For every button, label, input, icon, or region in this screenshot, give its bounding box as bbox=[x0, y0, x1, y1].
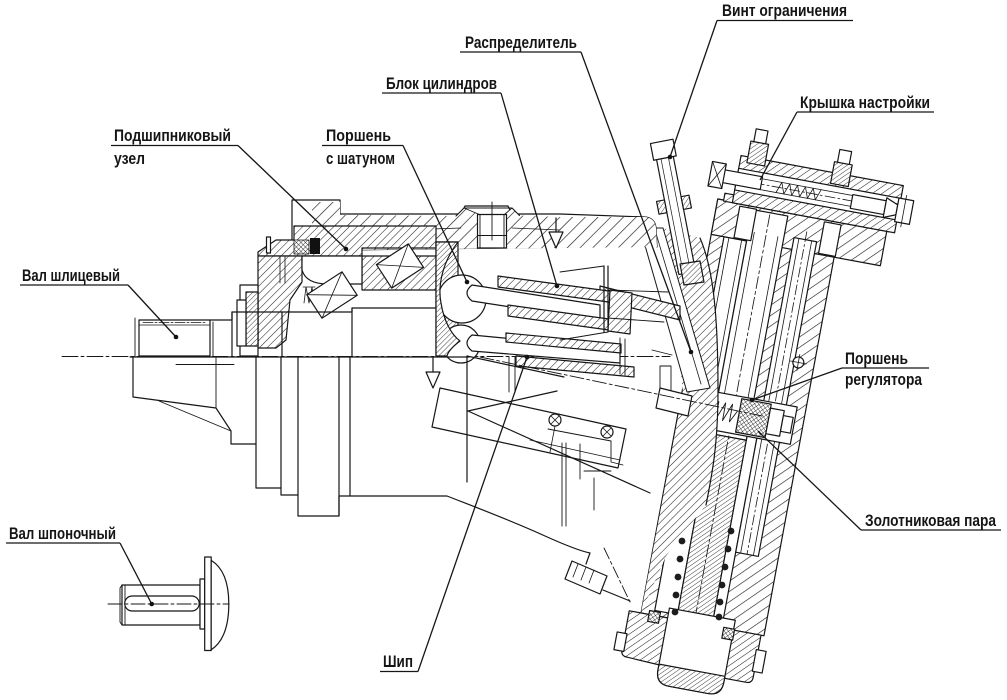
svg-text:Поршень: Поршень bbox=[326, 127, 391, 145]
svg-text:Блок цилиндров: Блок цилиндров bbox=[386, 75, 497, 93]
svg-text:Вал шлицевый: Вал шлицевый bbox=[22, 267, 120, 285]
svg-text:узел: узел bbox=[114, 150, 145, 168]
svg-text:Поршень: Поршень bbox=[845, 350, 908, 368]
svg-text:Распределитель: Распределитель bbox=[465, 34, 577, 52]
svg-text:регулятора: регулятора bbox=[845, 371, 923, 389]
svg-text:Шип: Шип bbox=[383, 653, 413, 671]
svg-text:Вал шпоночный: Вал шпоночный bbox=[9, 525, 116, 543]
svg-text:Крышка настройки: Крышка настройки bbox=[800, 94, 930, 112]
svg-text:Подшипниковый: Подшипниковый bbox=[114, 127, 231, 145]
svg-text:с шатуном: с шатуном bbox=[326, 150, 395, 168]
svg-text:Винт ограничения: Винт ограничения bbox=[722, 2, 847, 20]
svg-text:Золотниковая пара: Золотниковая пара bbox=[865, 512, 997, 530]
